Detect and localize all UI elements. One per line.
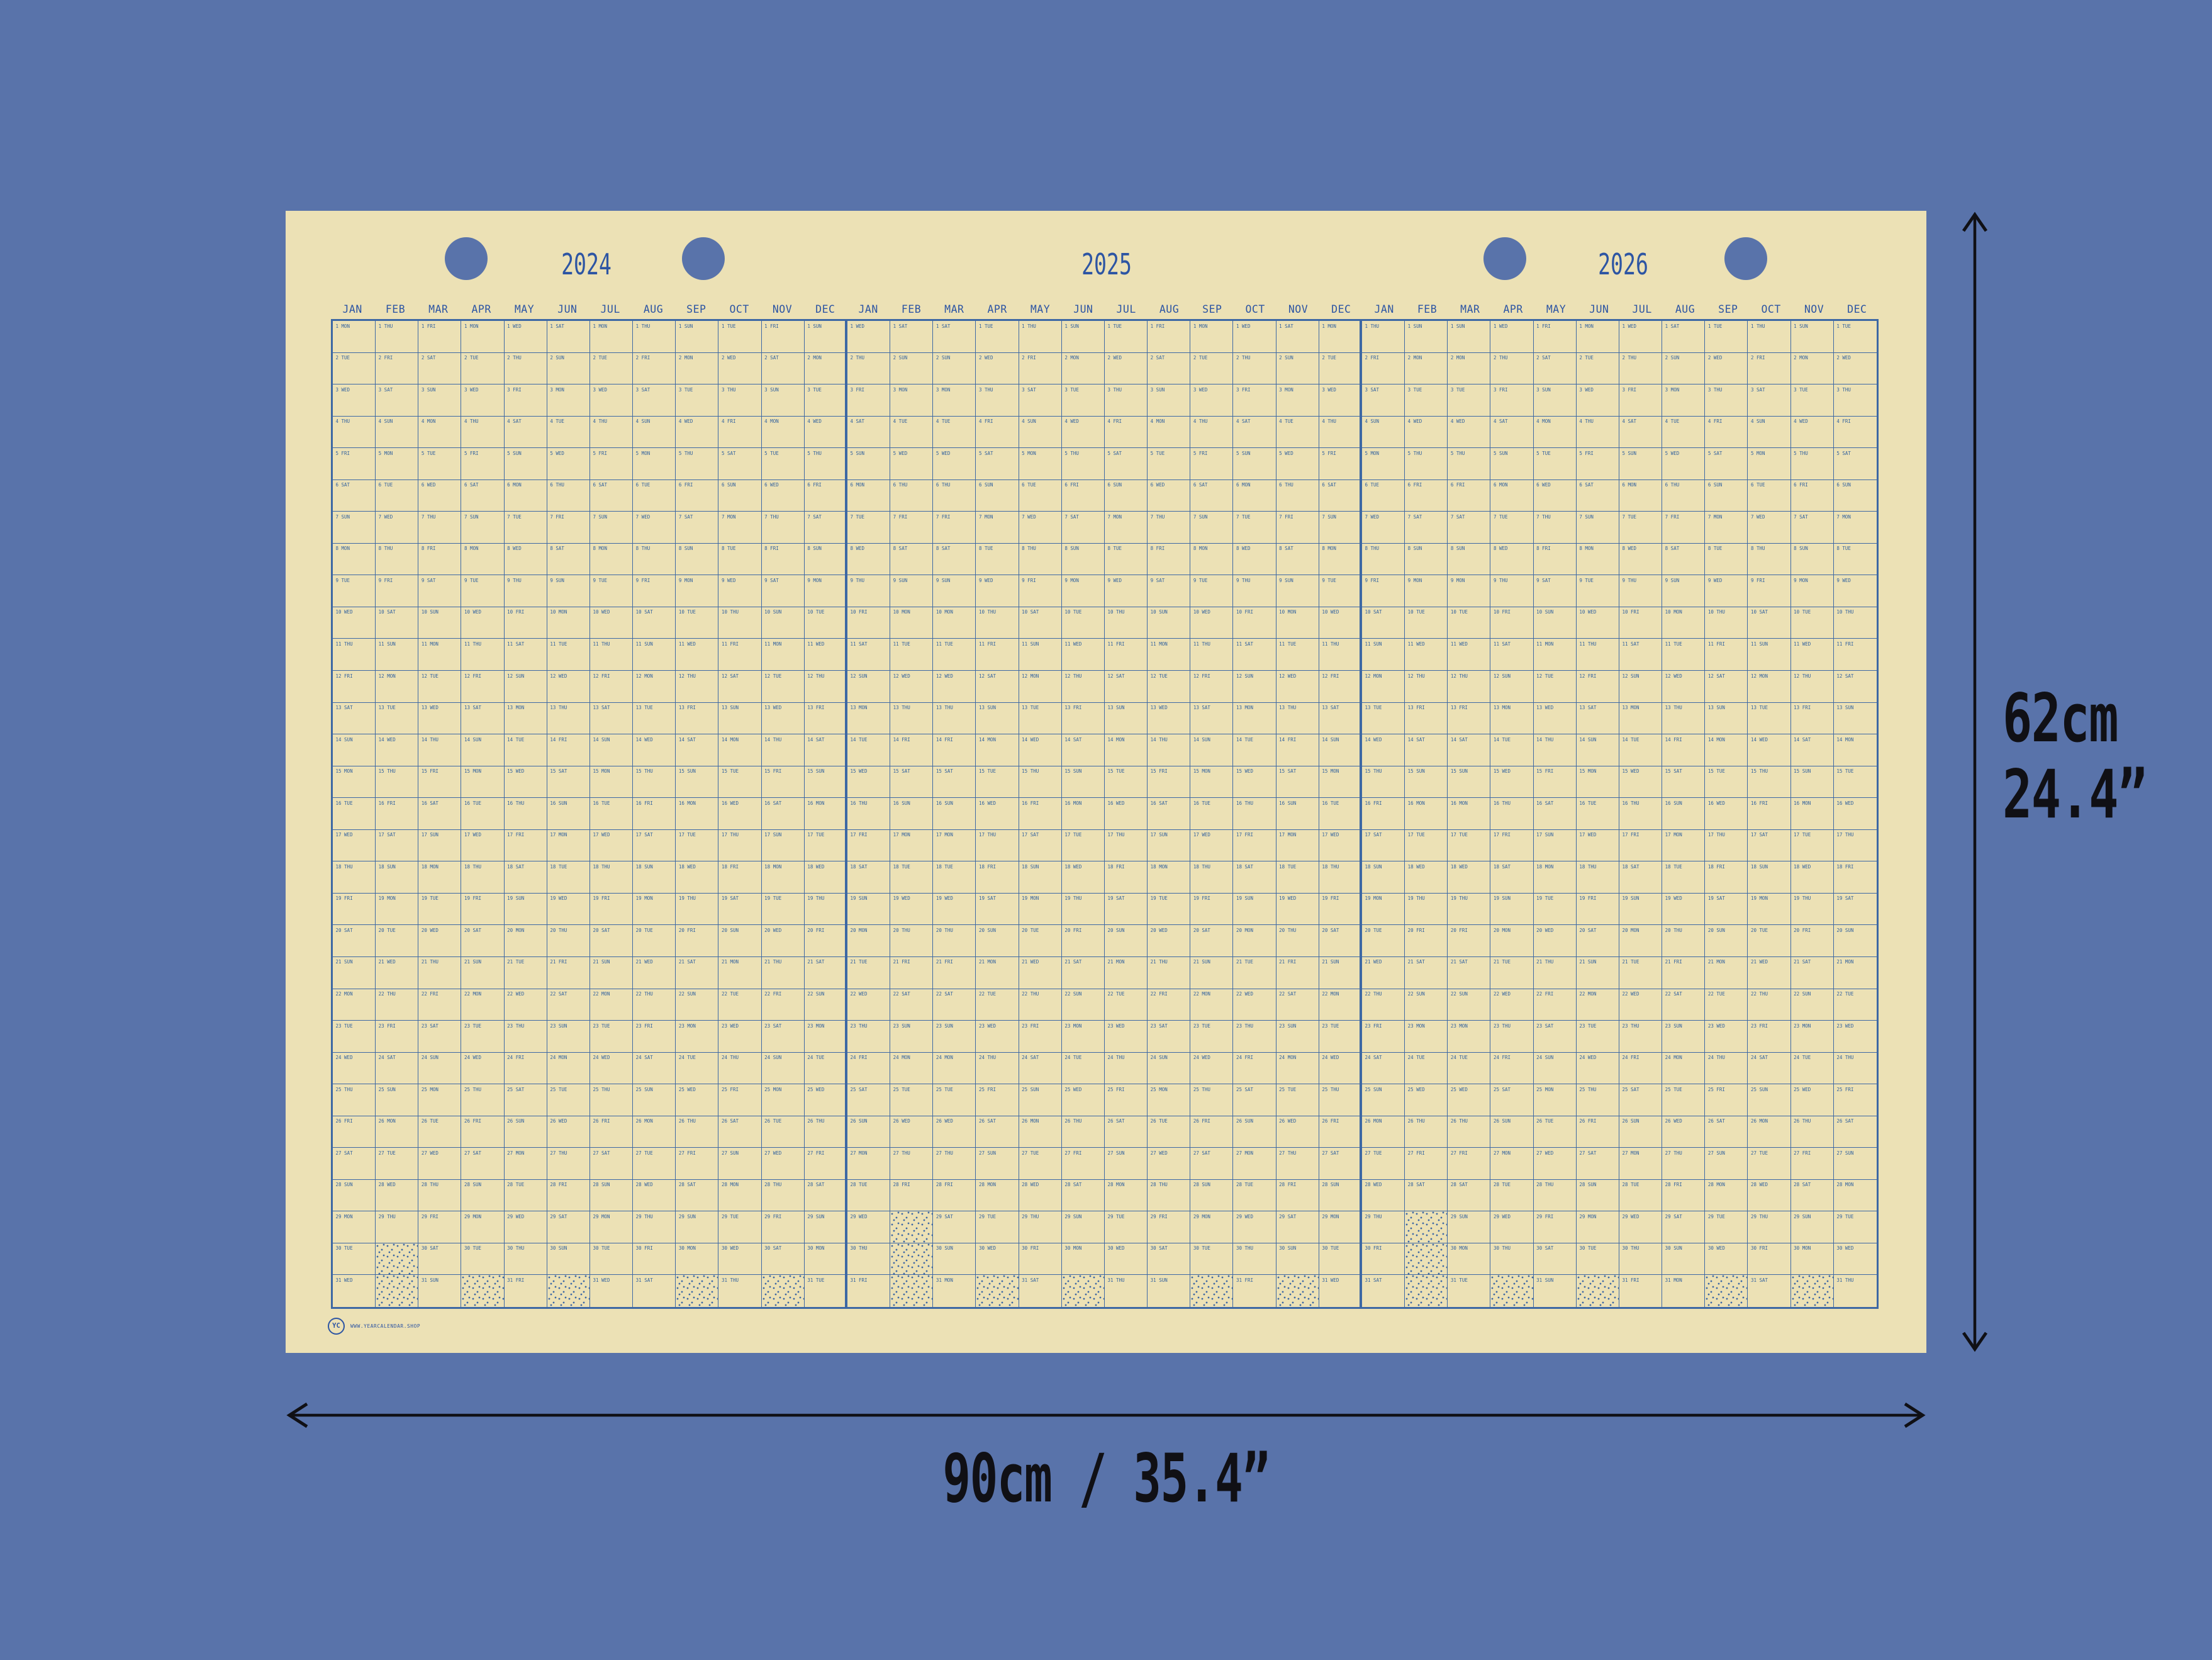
calendar-day-cell: 3 SUN (1534, 384, 1577, 417)
month-label: FEB (374, 301, 416, 318)
calendar-day-cell: 10 SAT (1019, 607, 1062, 639)
calendar-day-cell: 22 THU (1019, 989, 1062, 1021)
calendar-day-cell: 11 SAT (1233, 639, 1276, 671)
calendar-day-cell: 4 WED (676, 417, 718, 449)
calendar-day-cell: 18 WED (805, 861, 847, 894)
calendar-day-cell: 24 MON (890, 1053, 933, 1085)
calendar-day-cell: 30 SUN (547, 1243, 590, 1276)
calendar-day-cell: 7 SUN (333, 512, 376, 544)
calendar-day-cell: 25 WED (805, 1084, 847, 1116)
calendar-day-cell: 30 SUN (1276, 1243, 1319, 1276)
calendar-day-cell: 25 SUN (376, 1084, 418, 1116)
calendar-day-cell: 6 FRI (805, 480, 847, 512)
calendar-day-cell: 26 FRI (590, 1116, 633, 1148)
calendar-day-cell: 2 FRI (1748, 353, 1790, 385)
calendar-day-cell: 27 THU (890, 1148, 933, 1180)
calendar-day-cell: 4 FRI (1105, 417, 1148, 449)
calendar-day-cell: 5 THU (1791, 448, 1834, 480)
calendar-day-cell: 31 FRI (1619, 1275, 1662, 1307)
calendar-day-cell: 2 THU (1233, 353, 1276, 385)
height-cm: 62cm (2003, 681, 2147, 757)
calendar-day-cell: 23 WED (976, 1021, 1019, 1053)
calendar-day-cell: 16 THU (1619, 798, 1662, 830)
calendar-day-cell: 25 SUN (1748, 1084, 1790, 1116)
calendar-day-cell: 17 WED (1577, 830, 1619, 862)
calendar-day-cell: 16 SUN (890, 798, 933, 830)
calendar-day-cell: 28 WED (1748, 1180, 1790, 1212)
calendar-day-cell: 2 MON (1448, 353, 1490, 385)
calendar-empty-cell (1577, 1275, 1619, 1307)
calendar-day-cell: 2 TUE (1319, 353, 1362, 385)
calendar-day-cell: 2 SAT (1534, 353, 1577, 385)
month-label: MAR (417, 301, 460, 318)
calendar-day-cell: 20 MON (505, 925, 547, 957)
calendar-day-cell: 26 THU (1062, 1116, 1105, 1148)
calendar-day-cell: 16 SUN (1662, 798, 1705, 830)
calendar-day-cell: 6 MON (1233, 480, 1276, 512)
month-label: JAN (1363, 301, 1405, 318)
calendar-day-cell: 25 SAT (1233, 1084, 1276, 1116)
calendar-day-cell: 11 SAT (1619, 639, 1662, 671)
calendar-day-cell: 19 MON (376, 894, 418, 926)
calendar-day-cell: 8 TUE (976, 544, 1019, 576)
calendar-day-cell: 28 SUN (590, 1180, 633, 1212)
calendar-day-cell: 6 WED (1534, 480, 1577, 512)
calendar-day-cell: 19 SAT (1105, 894, 1148, 926)
calendar-day-cell: 24 THU (1105, 1053, 1148, 1085)
calendar-day-cell: 4 WED (1405, 417, 1448, 449)
calendar-day-cell: 3 MON (1276, 384, 1319, 417)
calendar-day-cell: 19 WED (890, 894, 933, 926)
calendar-day-cell: 18 THU (1319, 861, 1362, 894)
calendar-day-cell: 4 THU (590, 417, 633, 449)
calendar-day-cell: 30 WED (1834, 1243, 1877, 1276)
calendar-day-cell: 22 WED (847, 989, 890, 1021)
calendar-day-cell: 24 TUE (676, 1053, 718, 1085)
calendar-day-cell: 30 SAT (418, 1243, 461, 1276)
calendar-day-cell: 28 TUE (1233, 1180, 1276, 1212)
calendar-day-cell: 23 MON (1405, 1021, 1448, 1053)
month-label: NOV (761, 301, 803, 318)
calendar-day-cell: 2 SUN (1662, 353, 1705, 385)
calendar-day-cell: 19 THU (1791, 894, 1834, 926)
calendar-empty-cell (376, 1243, 418, 1276)
calendar-day-cell: 18 WED (1405, 861, 1448, 894)
calendar-day-cell: 9 TUE (461, 575, 504, 607)
calendar-day-cell: 24 WED (1319, 1053, 1362, 1085)
calendar-day-cell: 9 SAT (1148, 575, 1190, 607)
calendar-day-cell: 10 SUN (762, 607, 805, 639)
calendar-day-cell: 29 WED (1490, 1211, 1533, 1243)
calendar-day-cell: 26 MON (376, 1116, 418, 1148)
calendar-day-cell: 5 SUN (1619, 448, 1662, 480)
calendar-day-cell: 7 TUE (505, 512, 547, 544)
calendar-day-cell: 12 TUE (1148, 671, 1190, 703)
calendar-day-cell: 7 SUN (1319, 512, 1362, 544)
calendar-day-cell: 4 WED (1448, 417, 1490, 449)
calendar-day-cell: 8 THU (1748, 544, 1790, 576)
calendar-day-cell: 16 MON (805, 798, 847, 830)
calendar-day-cell: 2 TUE (1577, 353, 1619, 385)
calendar-empty-cell (1405, 1275, 1448, 1307)
calendar-day-cell: 15 MON (333, 766, 376, 799)
calendar-day-cell: 14 SAT (1062, 734, 1105, 766)
calendar-day-cell: 11 TUE (1662, 639, 1705, 671)
month-label: OCT (1750, 301, 1792, 318)
calendar-day-cell: 17 TUE (1448, 830, 1490, 862)
calendar-day-cell: 29 MON (1190, 1211, 1233, 1243)
calendar-day-cell: 8 FRI (1534, 544, 1577, 576)
calendar-day-cell: 26 THU (1448, 1116, 1490, 1148)
calendar-day-cell: 13 THU (933, 703, 976, 735)
calendar-day-cell: 28 WED (1362, 1180, 1405, 1212)
calendar-day-cell: 25 SUN (633, 1084, 676, 1116)
calendar-day-cell: 29 THU (376, 1211, 418, 1243)
calendar-day-cell: 28 MON (1705, 1180, 1748, 1212)
calendar-day-cell: 3 TUE (676, 384, 718, 417)
calendar-day-cell: 1 SAT (1276, 321, 1319, 353)
calendar-day-cell: 4 THU (333, 417, 376, 449)
calendar-day-cell: 11 FRI (1834, 639, 1877, 671)
calendar-day-cell: 31 SAT (1748, 1275, 1790, 1307)
calendar-day-cell: 15 FRI (1148, 766, 1190, 799)
calendar-day-cell: 26 MON (633, 1116, 676, 1148)
calendar-day-cell: 13 SAT (461, 703, 504, 735)
calendar-day-cell: 18 WED (1062, 861, 1105, 894)
calendar-day-cell: 31 TUE (1448, 1275, 1490, 1307)
calendar-day-cell: 23 WED (1105, 1021, 1148, 1053)
month-label: JAN (331, 301, 374, 318)
calendar-day-cell: 19 FRI (1577, 894, 1619, 926)
calendar-day-cell: 27 WED (1534, 1148, 1577, 1180)
calendar-day-cell: 1 THU (1019, 321, 1062, 353)
calendar-day-cell: 30 WED (1705, 1243, 1748, 1276)
calendar-day-cell: 15 SAT (890, 766, 933, 799)
calendar-day-cell: 5 MON (633, 448, 676, 480)
calendar-day-cell: 23 WED (1705, 1021, 1748, 1053)
calendar-day-cell: 27 SAT (1319, 1148, 1362, 1180)
calendar-day-cell: 3 THU (1105, 384, 1148, 417)
calendar-day-cell: 5 SAT (1834, 448, 1877, 480)
calendar-day-cell: 17 TUE (1791, 830, 1834, 862)
year-label-2024: 2024 (518, 242, 654, 286)
calendar-day-cell: 8 TUE (718, 544, 761, 576)
calendar-day-cell: 22 FRI (762, 989, 805, 1021)
calendar-day-cell: 28 FRI (1662, 1180, 1705, 1212)
calendar-day-cell: 14 SAT (1405, 734, 1448, 766)
calendar-day-cell: 21 FRI (547, 957, 590, 989)
calendar-day-cell: 13 TUE (1748, 703, 1790, 735)
calendar-day-cell: 14 SAT (676, 734, 718, 766)
calendar-day-cell: 17 THU (1705, 830, 1748, 862)
calendar-day-cell: 8 SUN (805, 544, 847, 576)
calendar-day-cell: 3 TUE (1062, 384, 1105, 417)
calendar-day-cell: 25 FRI (718, 1084, 761, 1116)
calendar-empty-cell (1276, 1275, 1319, 1307)
month-label: OCT (718, 301, 761, 318)
calendar-day-cell: 27 SAT (1190, 1148, 1233, 1180)
calendar-day-cell: 20 SAT (590, 925, 633, 957)
calendar-day-cell: 27 TUE (1019, 1148, 1062, 1180)
calendar-day-cell: 9 MON (676, 575, 718, 607)
calendar-day-cell: 1 WED (505, 321, 547, 353)
calendar-day-cell: 6 TUE (376, 480, 418, 512)
calendar-day-cell: 17 FRI (1233, 830, 1276, 862)
calendar-day-cell: 12 FRI (1190, 671, 1233, 703)
calendar-day-cell: 8 WED (1490, 544, 1533, 576)
calendar-day-cell: 12 THU (1062, 671, 1105, 703)
month-label: APR (1492, 301, 1534, 318)
calendar-day-cell: 22 THU (1362, 989, 1405, 1021)
calendar-day-cell: 23 FRI (633, 1021, 676, 1053)
calendar-day-cell: 21 MON (1105, 957, 1148, 989)
calendar-day-cell: 30 SAT (1534, 1243, 1577, 1276)
calendar-day-cell: 17 SUN (762, 830, 805, 862)
calendar-empty-cell (1190, 1275, 1233, 1307)
calendar-day-cell: 31 WED (590, 1275, 633, 1307)
calendar-day-cell: 3 SAT (1019, 384, 1062, 417)
calendar-day-cell: 19 TUE (418, 894, 461, 926)
calendar-day-cell: 4 TUE (1662, 417, 1705, 449)
calendar-day-cell: 22 FRI (1148, 989, 1190, 1021)
calendar-day-cell: 22 SAT (547, 989, 590, 1021)
calendar-day-cell: 3 MON (1662, 384, 1705, 417)
calendar-day-cell: 10 THU (1105, 607, 1148, 639)
calendar-day-cell: 10 MON (1662, 607, 1705, 639)
calendar-day-cell: 6 MON (847, 480, 890, 512)
calendar-day-cell: 3 TUE (1405, 384, 1448, 417)
calendar-day-cell: 22 SUN (1405, 989, 1448, 1021)
calendar-day-cell: 5 SAT (1105, 448, 1148, 480)
calendar-day-cell: 9 WED (718, 575, 761, 607)
calendar-day-cell: 17 WED (590, 830, 633, 862)
calendar-day-cell: 23 MON (805, 1021, 847, 1053)
calendar-day-cell: 20 THU (1276, 925, 1319, 957)
calendar-day-cell: 24 SAT (1362, 1053, 1405, 1085)
calendar-day-cell: 29 SUN (1448, 1211, 1490, 1243)
calendar-day-cell: 28 FRI (933, 1180, 976, 1212)
calendar-day-cell: 23 WED (1834, 1021, 1877, 1053)
calendar-day-cell: 7 SUN (461, 512, 504, 544)
calendar-day-cell: 11 MON (1534, 639, 1577, 671)
calendar-day-cell: 28 TUE (1490, 1180, 1533, 1212)
calendar-day-cell: 18 MON (418, 861, 461, 894)
calendar-day-cell: 12 FRI (333, 671, 376, 703)
calendar-day-cell: 23 TUE (1319, 1021, 1362, 1053)
calendar-day-cell: 21 THU (762, 957, 805, 989)
calendar-day-cell: 5 TUE (418, 448, 461, 480)
calendar-day-cell: 13 FRI (1791, 703, 1834, 735)
calendar-day-cell: 9 SUN (933, 575, 976, 607)
calendar-day-cell: 9 FRI (633, 575, 676, 607)
calendar-day-cell: 25 TUE (890, 1084, 933, 1116)
calendar-day-cell: 8 SUN (676, 544, 718, 576)
calendar-day-cell: 23 SUN (890, 1021, 933, 1053)
calendar-day-cell: 4 THU (461, 417, 504, 449)
calendar-day-cell: 1 MON (333, 321, 376, 353)
calendar-day-cell: 3 WED (590, 384, 633, 417)
calendar-day-cell: 22 SAT (1276, 989, 1319, 1021)
calendar-day-cell: 15 SAT (933, 766, 976, 799)
month-label: MAR (1449, 301, 1492, 318)
calendar-day-cell: 29 FRI (418, 1211, 461, 1243)
month-label: JUL (589, 301, 632, 318)
calendar-day-cell: 12 SAT (1105, 671, 1148, 703)
calendar-day-cell: 21 THU (1148, 957, 1190, 989)
calendar-day-cell: 5 MON (1019, 448, 1062, 480)
calendar-day-cell: 7 THU (1534, 512, 1577, 544)
calendar-day-cell: 23 THU (847, 1021, 890, 1053)
calendar-day-cell: 21 SUN (333, 957, 376, 989)
calendar-day-cell: 8 THU (1362, 544, 1405, 576)
calendar-poster: 2024 2025 2026 JANFEBMARAPRMAYJUNJULAUGS… (286, 211, 1926, 1353)
month-label: AUG (1148, 301, 1190, 318)
calendar-day-cell: 15 SAT (1276, 766, 1319, 799)
calendar-day-cell: 17 SAT (376, 830, 418, 862)
calendar-day-cell: 10 WED (1319, 607, 1362, 639)
calendar-day-cell: 27 THU (1276, 1148, 1319, 1180)
calendar-day-cell: 11 FRI (1105, 639, 1148, 671)
calendar-day-cell: 17 WED (461, 830, 504, 862)
month-label: MAY (1534, 301, 1577, 318)
calendar-day-cell: 13 MON (1490, 703, 1533, 735)
calendar-day-cell: 16 SAT (762, 798, 805, 830)
calendar-day-cell: 17 MON (1276, 830, 1319, 862)
calendar-day-cell: 10 SUN (1534, 607, 1577, 639)
calendar-day-cell: 3 MON (933, 384, 976, 417)
calendar-day-cell: 20 THU (1662, 925, 1705, 957)
calendar-day-cell: 3 MON (547, 384, 590, 417)
calendar-day-cell: 28 SAT (676, 1180, 718, 1212)
calendar-day-cell: 26 FRI (1190, 1116, 1233, 1148)
calendar-day-cell: 9 SUN (890, 575, 933, 607)
calendar-day-cell: 6 SUN (718, 480, 761, 512)
calendar-day-cell: 9 SAT (1534, 575, 1577, 607)
calendar-day-cell: 19 THU (1448, 894, 1490, 926)
calendar-day-cell: 26 SAT (1834, 1116, 1877, 1148)
calendar-day-cell: 29 SAT (933, 1211, 976, 1243)
calendar-day-cell: 30 MON (1448, 1243, 1490, 1276)
calendar-day-cell: 22 SUN (805, 989, 847, 1021)
calendar-day-cell: 19 SAT (976, 894, 1019, 926)
calendar-day-cell: 24 MON (547, 1053, 590, 1085)
calendar-day-cell: 22 TUE (976, 989, 1019, 1021)
calendar-day-cell: 12 MON (1748, 671, 1790, 703)
calendar-day-cell: 1 SAT (890, 321, 933, 353)
calendar-day-cell: 9 SUN (1662, 575, 1705, 607)
height-dimension-label: 62cm 24.4” (2003, 681, 2147, 833)
calendar-day-cell: 21 FRI (1662, 957, 1705, 989)
calendar-day-cell: 20 WED (418, 925, 461, 957)
calendar-day-cell: 18 TUE (933, 861, 976, 894)
calendar-day-cell: 9 FRI (1362, 575, 1405, 607)
calendar-day-cell: 27 SUN (1834, 1148, 1877, 1180)
calendar-day-cell: 4 SUN (633, 417, 676, 449)
calendar-day-cell: 25 MON (1534, 1084, 1577, 1116)
calendar-day-cell: 19 THU (676, 894, 718, 926)
calendar-day-cell: 14 FRI (1662, 734, 1705, 766)
calendar-day-cell: 11 THU (1319, 639, 1362, 671)
calendar-day-cell: 14 WED (1362, 734, 1405, 766)
calendar-day-cell: 27 WED (762, 1148, 805, 1180)
calendar-day-cell: 9 THU (1233, 575, 1276, 607)
calendar-day-cell: 10 TUE (1062, 607, 1105, 639)
calendar-day-cell: 9 MON (1791, 575, 1834, 607)
calendar-day-cell: 10 SAT (1362, 607, 1405, 639)
calendar-day-cell: 14 SAT (805, 734, 847, 766)
calendar-day-cell: 22 FRI (418, 989, 461, 1021)
calendar-day-cell: 30 FRI (1019, 1243, 1062, 1276)
calendar-day-cell: 27 FRI (1448, 1148, 1490, 1180)
calendar-day-cell: 3 WED (333, 384, 376, 417)
calendar-day-cell: 26 TUE (1148, 1116, 1190, 1148)
calendar-day-cell: 28 SUN (1190, 1180, 1233, 1212)
calendar-day-cell: 1 SUN (1405, 321, 1448, 353)
calendar-day-cell: 14 SAT (1448, 734, 1490, 766)
calendar-day-cell: 24 SUN (418, 1053, 461, 1085)
calendar-day-cell: 20 WED (1534, 925, 1577, 957)
calendar-day-cell: 17 THU (1105, 830, 1148, 862)
calendar-day-cell: 17 SAT (633, 830, 676, 862)
calendar-day-cell: 12 WED (1662, 671, 1705, 703)
calendar-day-cell: 13 TUE (1362, 703, 1405, 735)
calendar-day-cell: 21 MON (1834, 957, 1877, 989)
calendar-day-cell: 2 TUE (333, 353, 376, 385)
calendar-day-cell: 1 TUE (1834, 321, 1877, 353)
calendar-day-cell: 3 SAT (633, 384, 676, 417)
calendar-day-cell: 5 THU (805, 448, 847, 480)
calendar-day-cell: 22 MON (461, 989, 504, 1021)
calendar-empty-cell (890, 1211, 933, 1243)
calendar-day-cell: 29 SUN (1062, 1211, 1105, 1243)
calendar-day-cell: 30 TUE (461, 1243, 504, 1276)
calendar-day-cell: 20 THU (933, 925, 976, 957)
calendar-day-cell: 18 MON (1148, 861, 1190, 894)
calendar-day-cell: 22 MON (1190, 989, 1233, 1021)
calendar-day-cell: 25 WED (1405, 1084, 1448, 1116)
calendar-day-cell: 21 TUE (505, 957, 547, 989)
calendar-day-cell: 29 WED (1619, 1211, 1662, 1243)
calendar-day-cell: 3 WED (461, 384, 504, 417)
calendar-day-cell: 16 WED (718, 798, 761, 830)
month-label: JUN (546, 301, 589, 318)
calendar-day-cell: 1 WED (1490, 321, 1533, 353)
calendar-day-cell: 24 TUE (1062, 1053, 1105, 1085)
calendar-day-cell: 31 SUN (1534, 1275, 1577, 1307)
month-label: DEC (804, 301, 847, 318)
calendar-day-cell: 18 FRI (1834, 861, 1877, 894)
calendar-day-cell: 12 WED (1276, 671, 1319, 703)
calendar-day-cell: 31 WED (333, 1275, 376, 1307)
calendar-day-cell: 22 MON (1577, 989, 1619, 1021)
calendar-day-cell: 4 FRI (1705, 417, 1748, 449)
calendar-day-cell: 2 SAT (418, 353, 461, 385)
calendar-day-cell: 30 TUE (333, 1243, 376, 1276)
calendar-day-cell: 15 TUE (1105, 766, 1148, 799)
calendar-day-cell: 25 WED (1791, 1084, 1834, 1116)
calendar-day-cell: 14 FRI (890, 734, 933, 766)
calendar-day-cell: 15 WED (505, 766, 547, 799)
calendar-day-cell: 30 FRI (1362, 1243, 1405, 1276)
calendar-day-cell: 14 MON (718, 734, 761, 766)
calendar-day-cell: 9 MON (1448, 575, 1490, 607)
calendar-day-cell: 9 SAT (418, 575, 461, 607)
calendar-day-cell: 18 WED (1791, 861, 1834, 894)
calendar-day-cell: 29 THU (1362, 1211, 1405, 1243)
calendar-day-cell: 14 TUE (847, 734, 890, 766)
calendar-day-cell: 4 THU (1319, 417, 1362, 449)
calendar-day-cell: 25 THU (333, 1084, 376, 1116)
